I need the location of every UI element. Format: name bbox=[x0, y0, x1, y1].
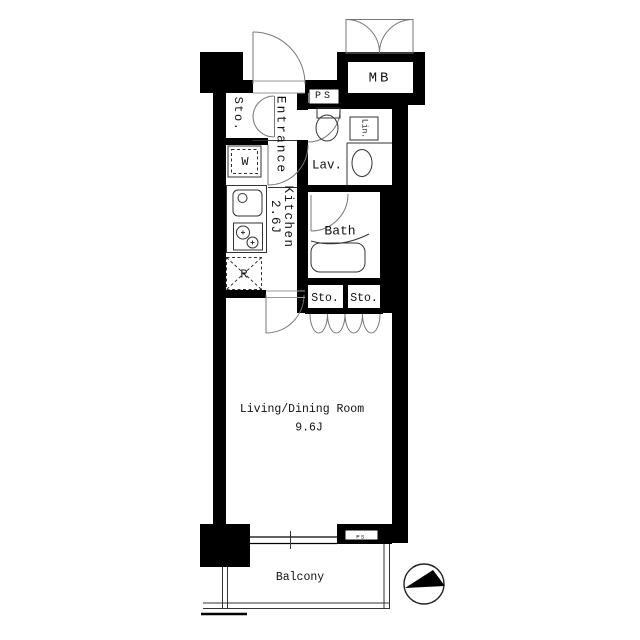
labels: MB PS Entrance Sto. W Kitchen 2.6J R Lav… bbox=[231, 71, 391, 585]
label-pipe-space-top: PS bbox=[315, 91, 333, 102]
washbasin bbox=[352, 150, 372, 177]
label-fridge: R bbox=[240, 268, 247, 282]
wall bbox=[308, 278, 380, 285]
label-washer: W bbox=[241, 155, 249, 169]
label-living-dining: Living/Dining Room bbox=[240, 403, 364, 416]
wall bbox=[213, 93, 226, 524]
wall bbox=[200, 52, 243, 93]
floorplan-linework: MB PS Entrance Sto. W Kitchen 2.6J R Lav… bbox=[0, 0, 640, 640]
storage-door-arc bbox=[253, 96, 274, 117]
label-entrance: Entrance bbox=[274, 96, 289, 174]
label-meter-box: MB bbox=[369, 71, 392, 87]
label-storage-hall-right: Sto. bbox=[350, 292, 378, 305]
wall bbox=[380, 192, 392, 313]
wall bbox=[226, 290, 266, 298]
label-bath: Bath bbox=[324, 224, 355, 239]
wall bbox=[226, 138, 268, 145]
label-lavatory: Lav. bbox=[312, 159, 342, 173]
label-kitchen: Kitchen bbox=[281, 185, 295, 248]
label-balcony: Balcony bbox=[276, 571, 324, 584]
entrance-door-arc bbox=[253, 32, 305, 84]
wall bbox=[305, 308, 383, 314]
wall bbox=[243, 80, 253, 93]
toilet-tank bbox=[317, 108, 340, 118]
mb-door-arc-left bbox=[346, 20, 380, 54]
storage-door-arc bbox=[253, 117, 274, 137]
wall bbox=[200, 524, 250, 567]
bathtub bbox=[311, 243, 365, 272]
faucet bbox=[238, 194, 247, 203]
mb-door-arc-right bbox=[379, 20, 413, 54]
label-living-size: 9.6J bbox=[295, 422, 323, 435]
wall bbox=[297, 185, 392, 192]
label-kitchen-size: 2.6J bbox=[268, 200, 282, 234]
wall bbox=[392, 93, 408, 543]
label-pipe-space-bottom: PS bbox=[356, 534, 366, 541]
label-storage-hall-left: Sto. bbox=[311, 292, 339, 305]
wall bbox=[297, 93, 308, 110]
kitchen-sink bbox=[233, 190, 262, 216]
compass-icon bbox=[404, 564, 445, 604]
floorplan: MB PS Entrance Sto. W Kitchen 2.6J R Lav… bbox=[0, 0, 640, 640]
wall bbox=[343, 285, 348, 308]
hall-storage-folding-doors bbox=[310, 314, 380, 333]
label-linen: Lin. bbox=[360, 119, 369, 138]
label-storage-entrance: Sto. bbox=[231, 97, 245, 132]
